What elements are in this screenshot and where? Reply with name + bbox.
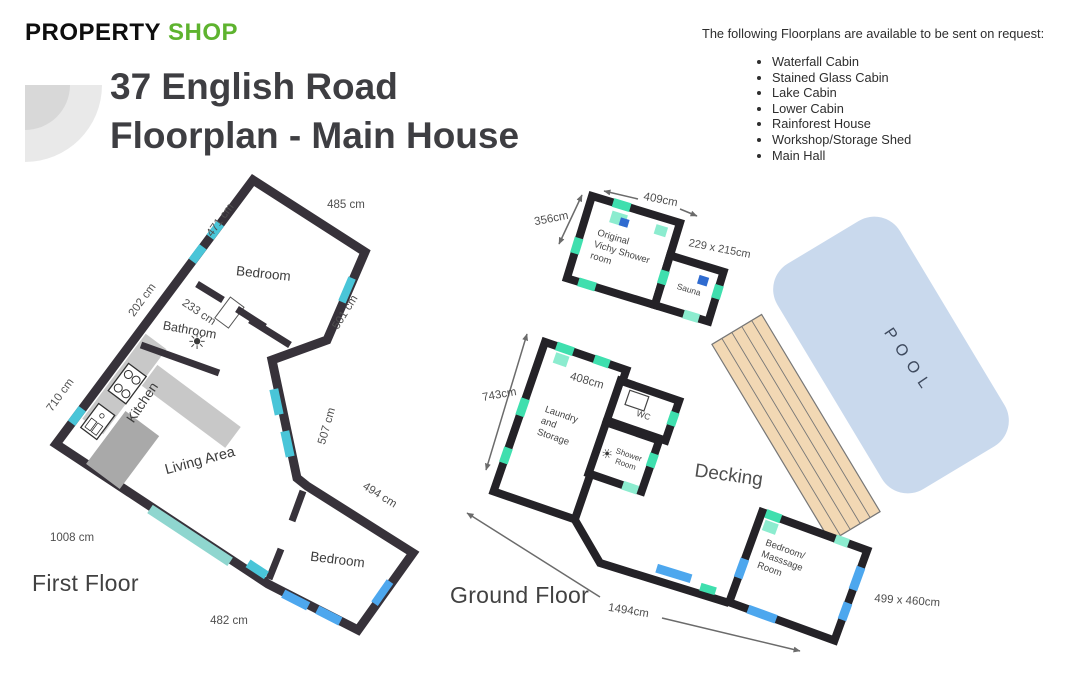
fan-icon: ☀: [188, 331, 207, 354]
property-shop-logo: PROPERTYSHOP: [25, 19, 238, 47]
ground-floor-heading: Ground Floor: [450, 582, 589, 609]
request-panel-heading: The following Floorplans are available t…: [702, 26, 1084, 41]
dim-482: 482 cm: [210, 615, 248, 627]
dim-499: 499 x 460cm: [874, 593, 941, 610]
dim-710: 710 cm: [45, 376, 77, 414]
title-address: 37 English Road: [110, 62, 519, 111]
request-list-item: Lower Cabin: [772, 101, 1084, 117]
vichy-sauna-block: Original Vichy Shower room Sauna: [561, 190, 739, 327]
logo-word-shop: SHOP: [168, 19, 238, 46]
request-list-item: Stained Glass Cabin: [772, 70, 1084, 86]
dim-743: 743cm: [481, 386, 517, 404]
request-panel: The following Floorplans are available t…: [702, 26, 1084, 163]
request-list-item: Lake Cabin: [772, 85, 1084, 101]
room-label-decking: Decking: [693, 460, 764, 490]
dim-1008: 1008 cm: [50, 532, 94, 544]
dim-229: 229 x 215cm: [688, 237, 752, 261]
dim-507: 507 cm: [316, 406, 338, 446]
dim-356: 356cm: [533, 210, 569, 228]
title-subject: Floorplan - Main House: [110, 111, 519, 160]
request-list-item: Waterfall Cabin: [772, 54, 1084, 70]
request-list-item: Rainforest House: [772, 116, 1084, 132]
first-floor-heading: First Floor: [32, 570, 139, 597]
laundry-block: Laundry and Storage WC Shower Room ☀: [489, 336, 688, 540]
dim-409: 409cm: [642, 191, 678, 209]
quarter-circle-decoration: [25, 85, 102, 162]
first-floor-plan: 485 cm 471 cm 202 cm 710 cm 233 cm 501 c…: [45, 180, 413, 630]
dim-arrow-409: [680, 209, 697, 216]
floorplan-page: { "logo": { "word1": "PROPERTY", "word2"…: [0, 0, 1086, 674]
dim-485: 485 cm: [327, 199, 365, 211]
dim-494: 494 cm: [360, 480, 398, 510]
request-list: Waterfall Cabin Stained Glass Cabin Lake…: [702, 54, 1084, 163]
logo-word-property: PROPERTY: [25, 19, 161, 46]
request-list-item: Main Hall: [772, 148, 1084, 164]
request-list-item: Workshop/Storage Shed: [772, 132, 1084, 148]
dim-1494: 1494cm: [607, 602, 649, 620]
page-title: 37 English Road Floorplan - Main House: [110, 62, 519, 160]
